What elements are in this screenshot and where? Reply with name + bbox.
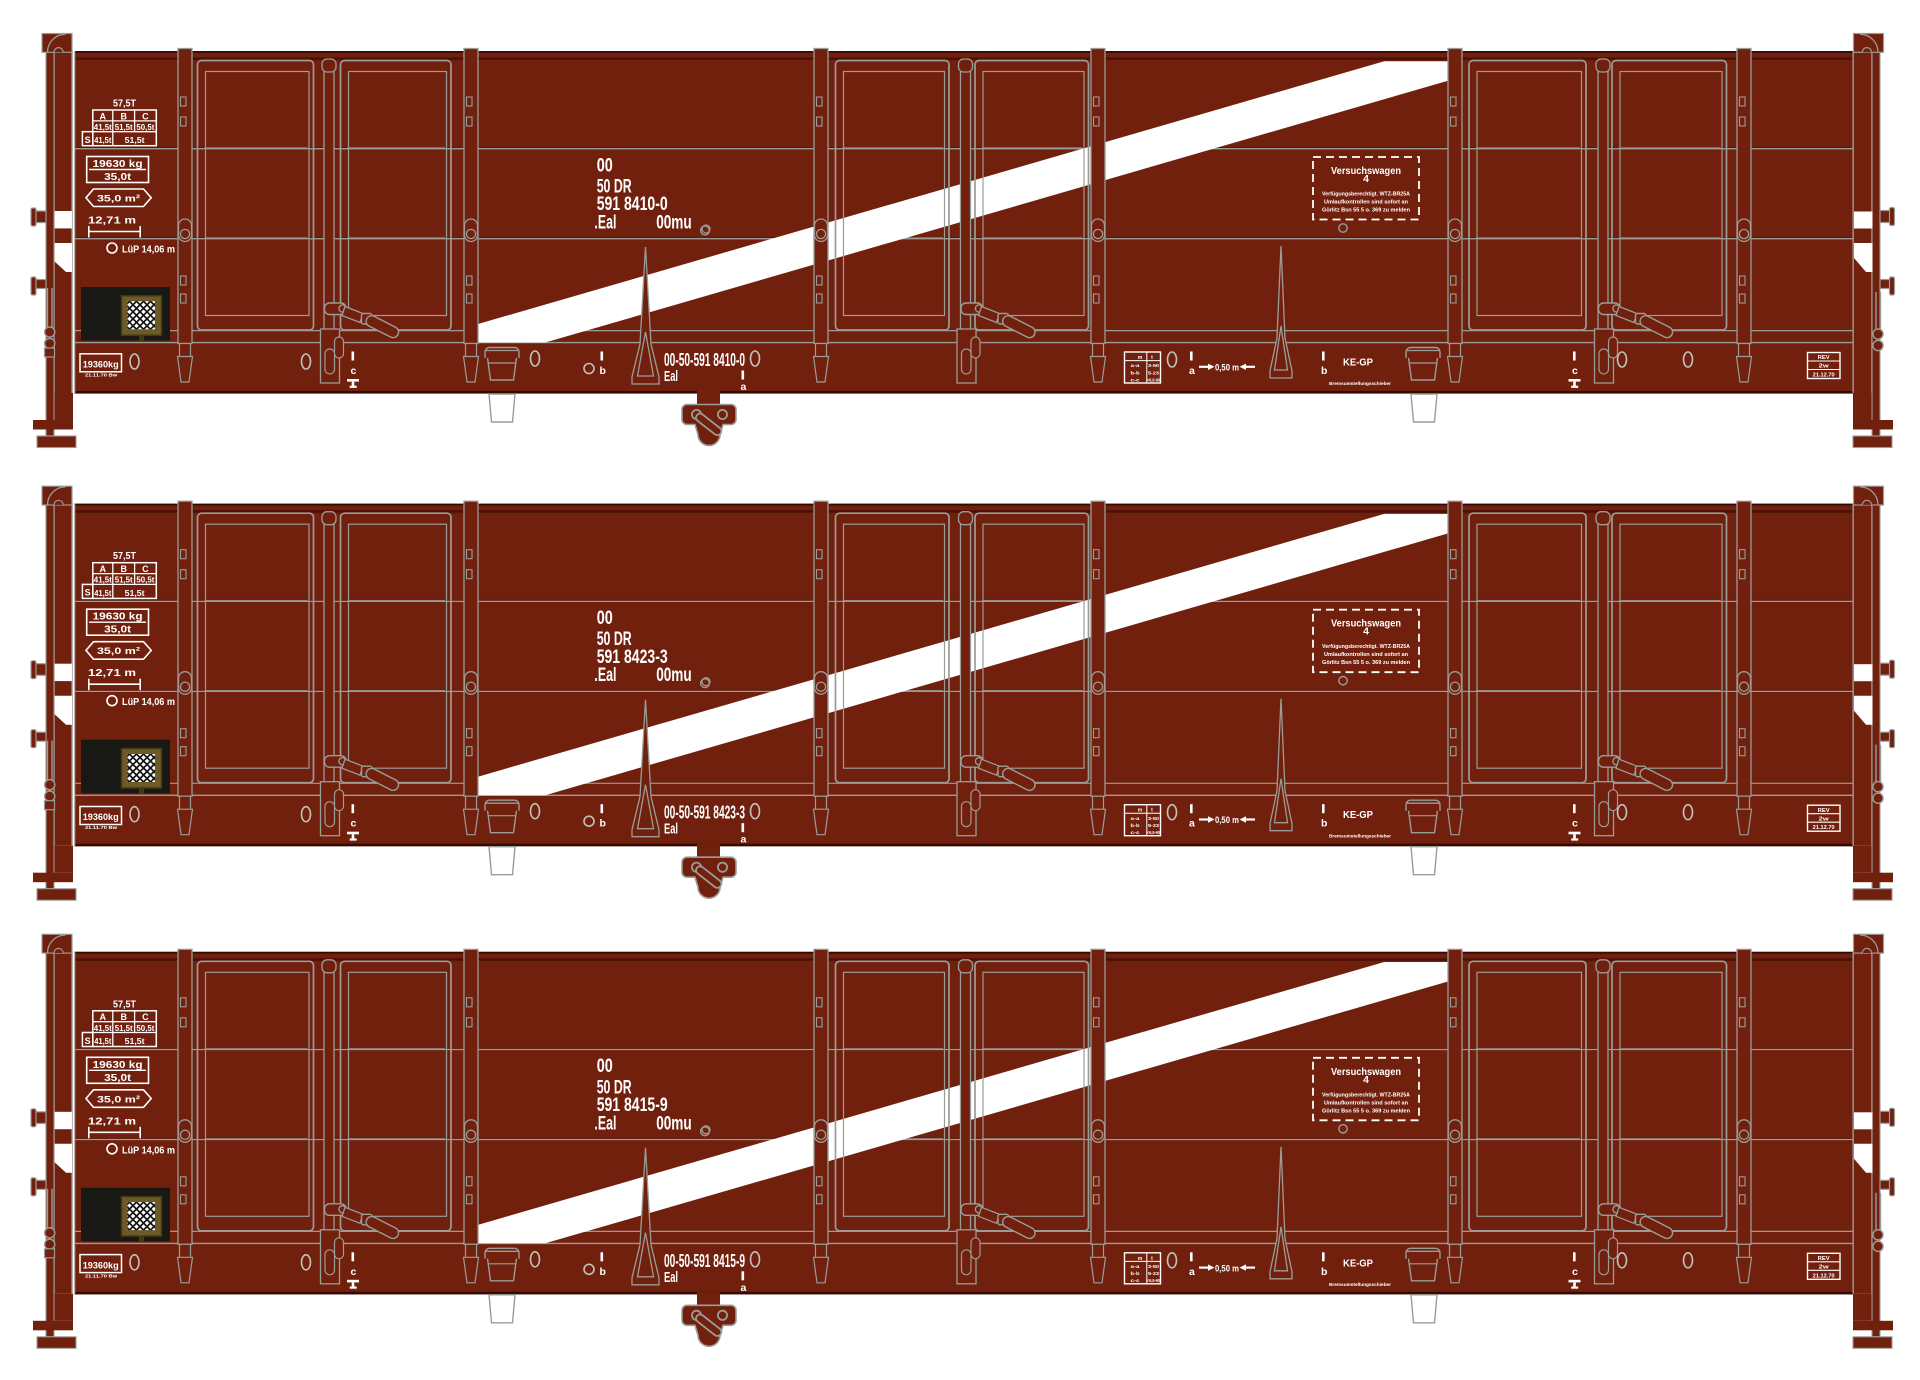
svg-text:Umlaufkontrollen sind sofort a: Umlaufkontrollen sind sofort an bbox=[1324, 200, 1408, 206]
svg-text:C: C bbox=[142, 1012, 149, 1022]
svg-text:41,5t: 41,5t bbox=[94, 1024, 112, 1033]
svg-text:00: 00 bbox=[597, 1056, 613, 1077]
svg-text:19360kg: 19360kg bbox=[83, 1260, 119, 1271]
svg-text:Eal: Eal bbox=[664, 821, 678, 838]
svg-text:S: S bbox=[85, 588, 91, 598]
svg-text:5-23: 5-23 bbox=[1148, 370, 1160, 375]
svg-text:m: m bbox=[1138, 1256, 1143, 1262]
svg-text:2w: 2w bbox=[1819, 364, 1830, 370]
svg-text:A: A bbox=[100, 1012, 107, 1022]
svg-text:57,5T: 57,5T bbox=[113, 98, 136, 110]
svg-text:41,5t: 41,5t bbox=[94, 576, 112, 585]
svg-text:B: B bbox=[120, 1012, 127, 1022]
svg-text:12,71 m: 12,71 m bbox=[88, 667, 136, 679]
svg-text:b: b bbox=[600, 1266, 606, 1278]
svg-text:51,5t: 51,5t bbox=[115, 1024, 133, 1033]
svg-text:c: c bbox=[351, 1266, 357, 1278]
svg-text:Görlitz Bsn 55 5 o. 369 zu mel: Görlitz Bsn 55 5 o. 369 zu melden bbox=[1322, 1108, 1410, 1114]
svg-text:c: c bbox=[351, 365, 357, 377]
svg-text:b: b bbox=[600, 365, 606, 377]
svg-text:41,5t: 41,5t bbox=[94, 123, 112, 132]
svg-text:3-50: 3-50 bbox=[1148, 363, 1160, 368]
svg-text:21.12.70: 21.12.70 bbox=[1813, 825, 1835, 831]
svg-text:m: m bbox=[1138, 355, 1143, 361]
svg-text:35,0 m²: 35,0 m² bbox=[97, 646, 140, 657]
svg-text:REV: REV bbox=[1818, 808, 1830, 814]
svg-text:b: b bbox=[600, 818, 606, 830]
svg-text:2w: 2w bbox=[1819, 1265, 1830, 1271]
svg-text:00: 00 bbox=[597, 608, 613, 629]
svg-text:b: b bbox=[1321, 1266, 1327, 1278]
svg-text:C: C bbox=[142, 111, 149, 121]
svg-text:c: c bbox=[1572, 365, 1578, 377]
svg-text:00mu: 00mu bbox=[656, 665, 692, 686]
svg-text:a-a: a-a bbox=[1131, 1264, 1141, 1269]
svg-text:0,50 m: 0,50 m bbox=[1215, 1263, 1239, 1274]
svg-text:0,50 m: 0,50 m bbox=[1215, 363, 1239, 374]
svg-text:S: S bbox=[85, 1036, 91, 1046]
svg-text:<6,5-90: <6,5-90 bbox=[1147, 377, 1160, 382]
svg-text:b: b bbox=[1321, 818, 1327, 830]
svg-text:21.11.70 Bw: 21.11.70 Bw bbox=[85, 1273, 117, 1279]
svg-text:b-b: b-b bbox=[1131, 823, 1140, 828]
svg-text:21.11.70 Bw: 21.11.70 Bw bbox=[85, 825, 117, 831]
svg-text:21.12.70: 21.12.70 bbox=[1813, 373, 1835, 379]
svg-text:b-b: b-b bbox=[1131, 370, 1140, 375]
svg-text:<6,5-90: <6,5-90 bbox=[1147, 830, 1160, 835]
svg-text:Görlitz Bsn 55 5 o. 369 zu mel: Görlitz Bsn 55 5 o. 369 zu melden bbox=[1322, 208, 1410, 214]
svg-text:LüP 14,06 m: LüP 14,06 m bbox=[122, 244, 175, 256]
svg-text:19630 kg: 19630 kg bbox=[93, 612, 143, 623]
svg-text:A: A bbox=[100, 111, 107, 121]
svg-text:REV: REV bbox=[1818, 1256, 1830, 1262]
svg-text:KE-GP: KE-GP bbox=[1343, 809, 1373, 821]
svg-text:Umlaufkontrollen sind sofort a: Umlaufkontrollen sind sofort an bbox=[1324, 652, 1408, 658]
svg-text:51,5t: 51,5t bbox=[125, 588, 145, 598]
svg-text:c-c: c-c bbox=[1131, 830, 1141, 835]
svg-text:00: 00 bbox=[597, 155, 613, 176]
svg-text:KE-GP: KE-GP bbox=[1343, 357, 1373, 369]
svg-text:4: 4 bbox=[1363, 1074, 1369, 1086]
svg-text:c-c: c-c bbox=[1131, 377, 1141, 382]
svg-text:m: m bbox=[1138, 808, 1143, 814]
svg-text:00mu: 00mu bbox=[656, 213, 692, 234]
svg-text:5-23: 5-23 bbox=[1148, 823, 1160, 828]
svg-text:a-a: a-a bbox=[1131, 363, 1141, 368]
svg-text:.Eal: .Eal bbox=[594, 1113, 616, 1134]
svg-text:Bremsumstellungsschieber: Bremsumstellungsschieber bbox=[1329, 381, 1391, 387]
svg-text:Umlaufkontrollen sind sofort a: Umlaufkontrollen sind sofort an bbox=[1324, 1100, 1408, 1106]
svg-text:B: B bbox=[120, 564, 127, 574]
svg-text:a: a bbox=[1189, 365, 1195, 377]
svg-text:12,71 m: 12,71 m bbox=[88, 1115, 136, 1127]
svg-text:00-50-591 8415-9: 00-50-591 8415-9 bbox=[664, 1250, 745, 1271]
svg-text:Bremsumstellungsschieber: Bremsumstellungsschieber bbox=[1329, 834, 1391, 840]
svg-text:4: 4 bbox=[1363, 173, 1369, 185]
svg-text:12,71 m: 12,71 m bbox=[88, 215, 136, 227]
svg-text:50,5t: 50,5t bbox=[136, 123, 154, 132]
svg-text:00-50-591 8423-3: 00-50-591 8423-3 bbox=[664, 802, 745, 823]
svg-text:a-a: a-a bbox=[1131, 816, 1141, 821]
svg-text:B: B bbox=[120, 111, 127, 121]
svg-text:<6,5-90: <6,5-90 bbox=[1147, 1278, 1160, 1283]
svg-text:a: a bbox=[1189, 818, 1195, 830]
svg-text:a: a bbox=[741, 1282, 747, 1294]
svg-text:c: c bbox=[1572, 818, 1578, 830]
svg-text:35,0 m²: 35,0 m² bbox=[97, 1094, 140, 1105]
svg-text:b: b bbox=[1321, 365, 1327, 377]
svg-text:LüP 14,06 m: LüP 14,06 m bbox=[122, 696, 175, 708]
svg-text:.Eal: .Eal bbox=[594, 665, 616, 686]
svg-text:51,5t: 51,5t bbox=[125, 135, 145, 145]
svg-text:21.11.70 Bw: 21.11.70 Bw bbox=[85, 373, 117, 379]
svg-text:19630 kg: 19630 kg bbox=[93, 159, 143, 170]
svg-text:57,5T: 57,5T bbox=[113, 998, 136, 1010]
svg-text:A: A bbox=[100, 564, 107, 574]
svg-text:b-b: b-b bbox=[1131, 1271, 1140, 1276]
svg-text:4: 4 bbox=[1363, 626, 1369, 638]
svg-text:41,5t: 41,5t bbox=[94, 136, 111, 145]
svg-text:35,0t: 35,0t bbox=[104, 625, 132, 636]
svg-text:c-c: c-c bbox=[1131, 1278, 1141, 1283]
svg-text:a: a bbox=[1189, 1266, 1195, 1278]
svg-text:.Eal: .Eal bbox=[594, 213, 616, 234]
svg-text:51,5t: 51,5t bbox=[115, 123, 133, 132]
svg-text:c: c bbox=[351, 818, 357, 830]
svg-text:Verfügungsberechtigt. WTZ-BR25: Verfügungsberechtigt. WTZ-BR25A bbox=[1322, 644, 1410, 650]
svg-text:50,5t: 50,5t bbox=[136, 1024, 154, 1033]
svg-text:35,0t: 35,0t bbox=[104, 1073, 132, 1084]
svg-text:Görlitz Bsn 55 5 o. 369 zu mel: Görlitz Bsn 55 5 o. 369 zu melden bbox=[1322, 660, 1410, 666]
svg-text:Verfügungsberechtigt. WTZ-BR25: Verfügungsberechtigt. WTZ-BR25A bbox=[1322, 192, 1410, 198]
svg-text:19360kg: 19360kg bbox=[83, 812, 119, 823]
svg-text:3-50: 3-50 bbox=[1148, 1264, 1160, 1269]
svg-text:REV: REV bbox=[1818, 355, 1830, 361]
svg-text:51,5t: 51,5t bbox=[115, 576, 133, 585]
svg-text:Eal: Eal bbox=[664, 368, 678, 385]
svg-text:Eal: Eal bbox=[664, 1269, 678, 1286]
svg-text:35,0 m²: 35,0 m² bbox=[97, 194, 140, 205]
svg-text:a: a bbox=[741, 834, 747, 846]
svg-text:00-50-591 8410-0: 00-50-591 8410-0 bbox=[664, 349, 745, 370]
svg-text:41,5t: 41,5t bbox=[94, 1037, 111, 1046]
svg-text:C: C bbox=[142, 564, 149, 574]
svg-text:Bremsumstellungsschieber: Bremsumstellungsschieber bbox=[1329, 1282, 1391, 1288]
svg-text:LüP 14,06 m: LüP 14,06 m bbox=[122, 1144, 175, 1156]
svg-text:19360kg: 19360kg bbox=[83, 360, 119, 371]
svg-text:41,5t: 41,5t bbox=[94, 589, 111, 598]
svg-text:50,5t: 50,5t bbox=[136, 576, 154, 585]
svg-text:0,50 m: 0,50 m bbox=[1215, 815, 1239, 826]
svg-text:21.12.70: 21.12.70 bbox=[1813, 1273, 1835, 1279]
svg-text:KE-GP: KE-GP bbox=[1343, 1257, 1373, 1269]
svg-text:00mu: 00mu bbox=[656, 1113, 692, 1134]
svg-text:c: c bbox=[1572, 1266, 1578, 1278]
svg-text:Verfügungsberechtigt. WTZ-BR25: Verfügungsberechtigt. WTZ-BR25A bbox=[1322, 1092, 1410, 1098]
svg-text:5-23: 5-23 bbox=[1148, 1271, 1160, 1276]
svg-text:35,0t: 35,0t bbox=[104, 172, 132, 183]
svg-text:3-50: 3-50 bbox=[1148, 816, 1160, 821]
svg-text:19630 kg: 19630 kg bbox=[93, 1060, 143, 1071]
svg-text:S: S bbox=[85, 135, 91, 145]
svg-text:51,5t: 51,5t bbox=[125, 1036, 145, 1046]
svg-text:2w: 2w bbox=[1819, 816, 1830, 822]
svg-text:a: a bbox=[741, 381, 747, 393]
svg-text:57,5T: 57,5T bbox=[113, 550, 136, 562]
